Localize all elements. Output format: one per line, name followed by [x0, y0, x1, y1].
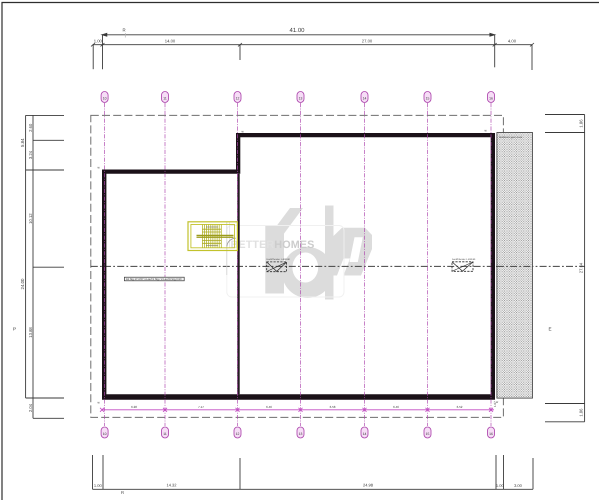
svg-text:16: 16 [489, 432, 493, 436]
svg-text:6.58: 6.58 [330, 405, 336, 409]
svg-text:27.00: 27.00 [362, 38, 373, 43]
svg-text:14: 14 [363, 432, 367, 436]
svg-text:10: 10 [103, 432, 107, 436]
svg-text:R: R [121, 490, 124, 495]
svg-text:15: 15 [426, 96, 430, 100]
svg-text:1.00: 1.00 [496, 483, 505, 488]
svg-text:6.52: 6.52 [457, 405, 463, 409]
svg-text:1.00: 1.00 [94, 483, 103, 488]
svg-text:24.98: 24.98 [363, 483, 374, 488]
svg-text:27.64: 27.64 [579, 262, 584, 273]
svg-text:13: 13 [299, 96, 303, 100]
svg-text:41.00: 41.00 [289, 27, 305, 34]
svg-text:10: 10 [103, 96, 107, 100]
svg-text:14.32: 14.32 [166, 483, 177, 488]
svg-text:7.17: 7.17 [198, 405, 204, 409]
svg-text:18 Stg 17.2/27 1.Lauf 9 Stg /: 18 Stg 17.2/27 1.Lauf 9 Stg / 2.Lauf 9 S… [126, 278, 182, 281]
svg-text:6.46: 6.46 [266, 405, 272, 409]
svg-text:12: 12 [236, 432, 240, 436]
svg-text:1.86: 1.86 [579, 408, 584, 417]
svg-text:R: R [123, 28, 126, 33]
svg-text:13.88: 13.88 [28, 327, 33, 338]
svg-text:3.00: 3.00 [514, 483, 523, 488]
svg-text:BETTERHOMES: BETTERHOMES [231, 239, 315, 251]
svg-text:5.84: 5.84 [20, 138, 25, 147]
svg-text:2.60: 2.60 [28, 123, 33, 132]
svg-text:Sichtbeton gem. Fass.: Sichtbeton gem. Fass. [499, 136, 523, 139]
svg-text:6.46: 6.46 [393, 405, 399, 409]
svg-text:14: 14 [363, 96, 367, 100]
svg-text:1.00: 1.00 [94, 38, 103, 43]
svg-text:Dachfl.fenster 1.40/0.90: Dachfl.fenster 1.40/0.90 [267, 258, 291, 261]
svg-text:16: 16 [489, 96, 493, 100]
svg-text:E: E [549, 327, 552, 332]
svg-text:6.28: 6.28 [131, 405, 137, 409]
svg-text:24.00: 24.00 [20, 278, 25, 290]
svg-text:13: 13 [299, 432, 303, 436]
svg-text:2.04: 2.04 [28, 403, 33, 412]
svg-text:11: 11 [163, 96, 167, 100]
svg-text:14.00: 14.00 [165, 38, 176, 43]
svg-text:12: 12 [236, 96, 240, 100]
svg-text:4.00: 4.00 [508, 38, 517, 43]
svg-text:11: 11 [163, 432, 167, 436]
svg-text:1.86: 1.86 [579, 119, 584, 128]
svg-text:10.12: 10.12 [28, 213, 33, 224]
svg-text:Dachfl.fenster 1.40/0.90: Dachfl.fenster 1.40/0.90 [452, 258, 476, 261]
svg-text:P: P [13, 327, 16, 332]
svg-text:15: 15 [426, 432, 430, 436]
svg-text:3.24: 3.24 [28, 150, 33, 159]
